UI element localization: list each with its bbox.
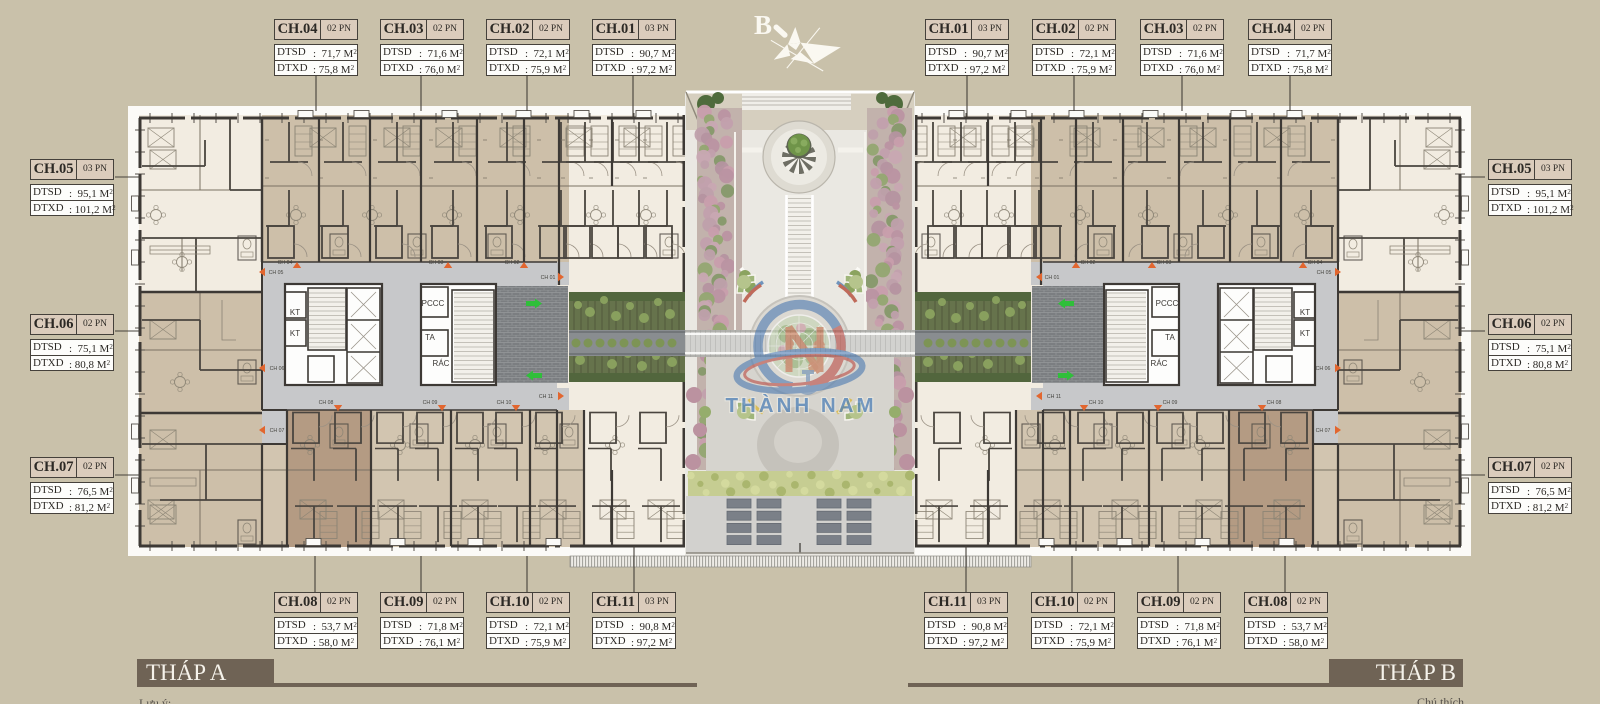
svg-text:CH 06: CH 06 xyxy=(1316,366,1331,372)
svg-text:RÁC: RÁC xyxy=(433,359,450,368)
svg-text:CH 03: CH 03 xyxy=(1157,260,1172,266)
svg-text:CH 02: CH 02 xyxy=(505,260,520,266)
svg-text:KT: KT xyxy=(1300,329,1310,338)
svg-text:KT: KT xyxy=(1300,308,1310,317)
svg-text:RÁC: RÁC xyxy=(1151,359,1168,368)
svg-text:CH 07: CH 07 xyxy=(1316,428,1331,434)
svg-text:CH 01: CH 01 xyxy=(541,275,556,281)
svg-text:TA: TA xyxy=(425,333,435,342)
svg-text:KT: KT xyxy=(290,329,300,338)
svg-text:TA: TA xyxy=(1165,333,1175,342)
svg-text:THÀNH NAM: THÀNH NAM xyxy=(725,394,876,417)
svg-text:CH 05: CH 05 xyxy=(1317,270,1332,276)
svg-text:CH 10: CH 10 xyxy=(1089,400,1104,406)
svg-text:CH 07: CH 07 xyxy=(270,428,285,434)
svg-text:CH 10: CH 10 xyxy=(497,400,512,406)
svg-text:CH 05: CH 05 xyxy=(269,270,284,276)
svg-text:CH 09: CH 09 xyxy=(423,400,438,406)
svg-text:CH 08: CH 08 xyxy=(319,400,334,406)
svg-text:CH 02: CH 02 xyxy=(1081,260,1096,266)
svg-text:CH 03: CH 03 xyxy=(429,260,444,266)
svg-text:CH 04: CH 04 xyxy=(1308,260,1323,266)
svg-text:CH 01: CH 01 xyxy=(1045,275,1060,281)
svg-text:PCCC: PCCC xyxy=(1156,299,1179,308)
svg-text:CH 08: CH 08 xyxy=(1267,400,1282,406)
svg-text:CH 04: CH 04 xyxy=(278,260,293,266)
svg-text:PCCC: PCCC xyxy=(422,299,445,308)
svg-text:CH 11: CH 11 xyxy=(1047,394,1061,400)
svg-text:CH 11: CH 11 xyxy=(539,394,553,400)
svg-text:CH 09: CH 09 xyxy=(1163,400,1178,406)
svg-text:CH 06: CH 06 xyxy=(270,366,285,372)
svg-text:KT: KT xyxy=(290,308,300,317)
